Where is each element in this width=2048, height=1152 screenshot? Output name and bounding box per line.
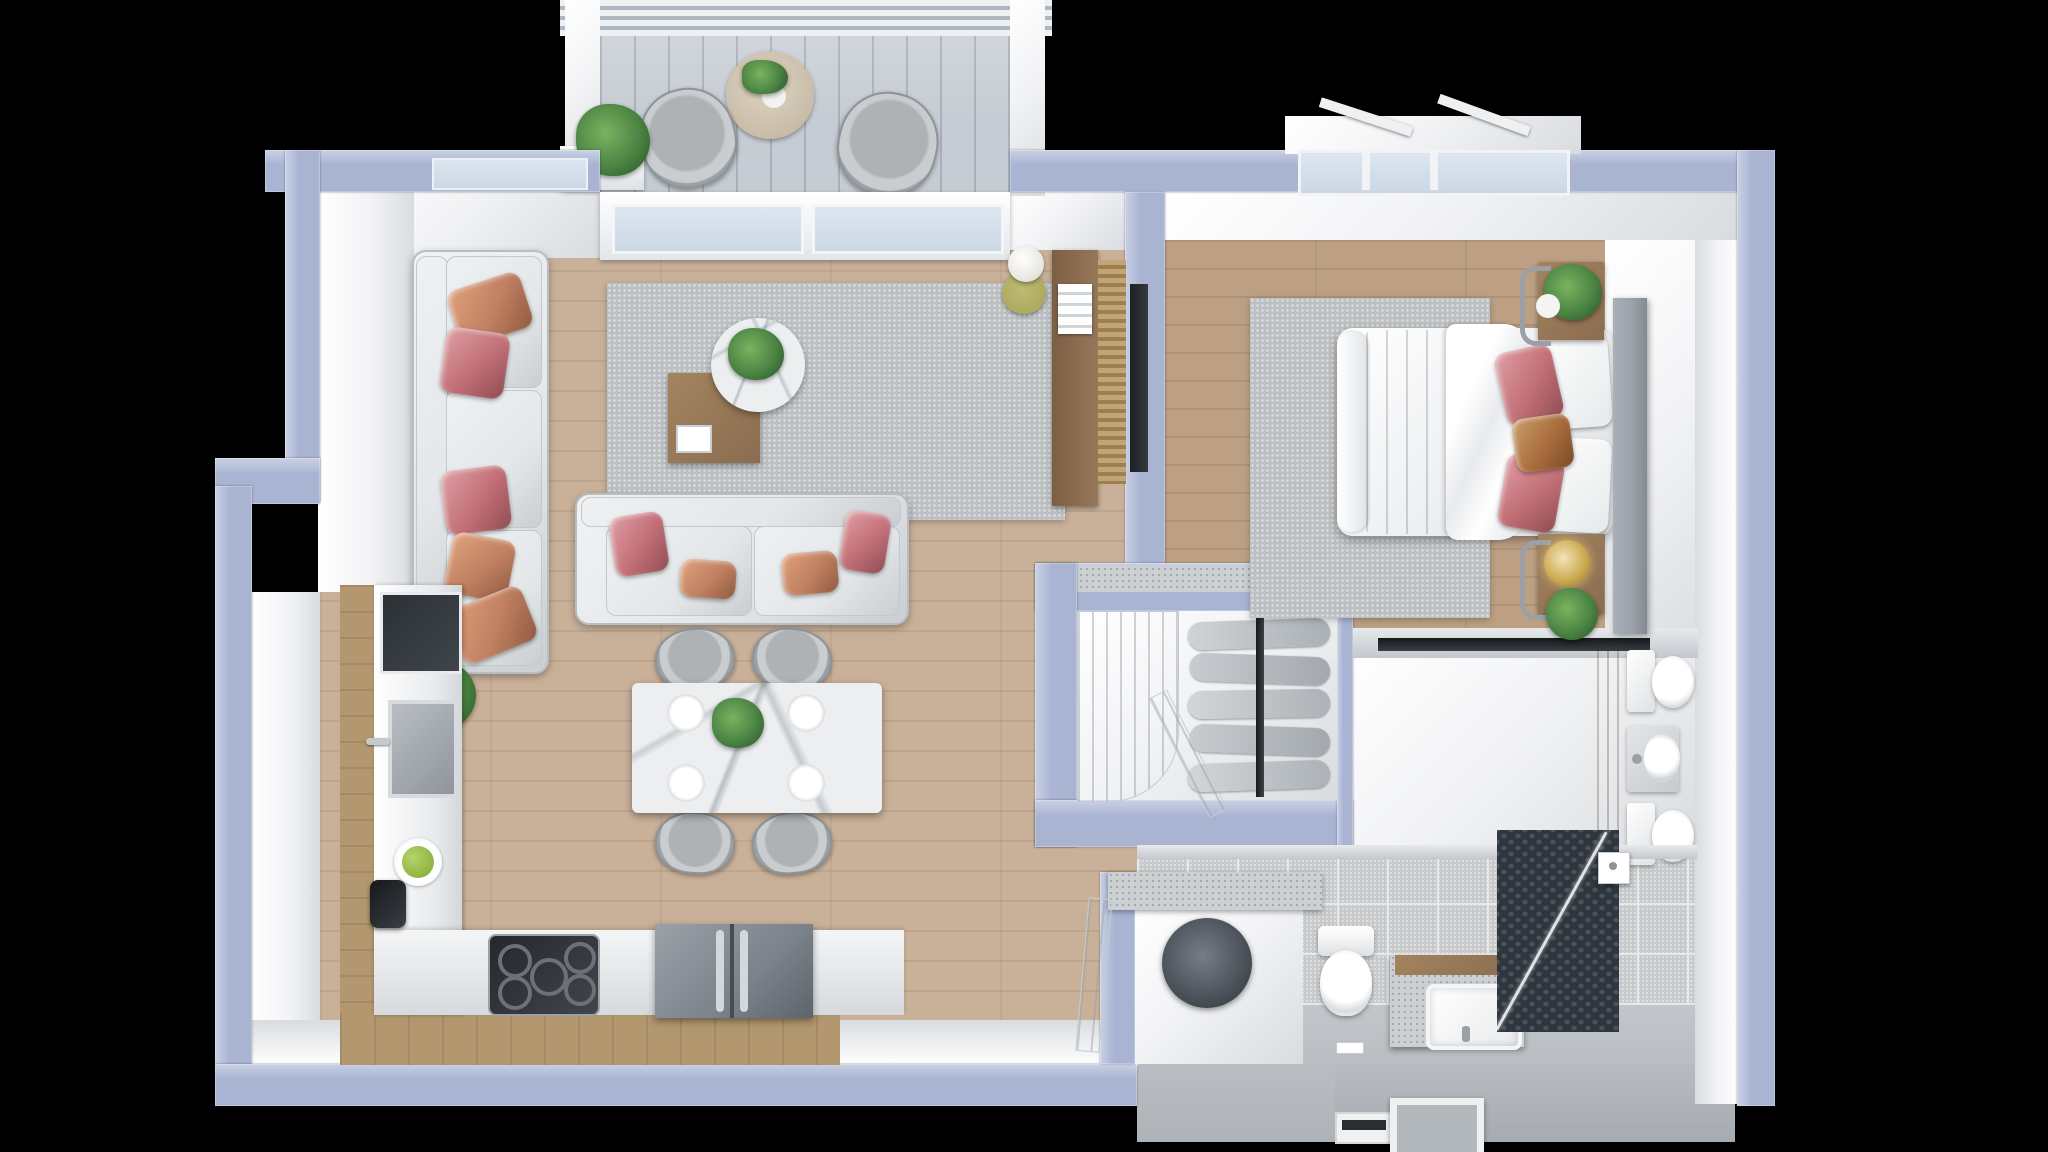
coffee-table-plant: [728, 328, 784, 380]
sofa2-pillow-rose-2: [838, 509, 893, 575]
nightstand-bottom-plant: [1546, 588, 1598, 640]
refrigerator-handle-1: [716, 930, 724, 1012]
wc-toilet-bowl: [1652, 656, 1694, 708]
refrigerator-door-split: [730, 924, 734, 1018]
cooktop-burner-5: [564, 974, 596, 1006]
floor-plan-stage: [0, 0, 2048, 1152]
cooktop-burner-1: [498, 944, 532, 978]
wall-bottom: [215, 1064, 1137, 1106]
kitchen-wood-strip: [340, 585, 374, 1065]
refrigerator-handle-2: [740, 930, 748, 1012]
bathroom-flush-plate: [1336, 1042, 1364, 1054]
sofa2-pillow-copper-1: [679, 558, 738, 600]
balcony-railing: [560, 0, 1052, 36]
sofa2-pillow-copper-2: [780, 550, 839, 597]
cooktop-burner-2: [498, 976, 532, 1010]
laundry-counter: [1108, 872, 1322, 910]
dining-plate-4: [787, 764, 825, 802]
washer-drum: [1162, 918, 1252, 1008]
balcony-table-plant: [742, 60, 788, 94]
bathroom-toilet-bowl: [1320, 950, 1372, 1016]
floor-lamp-sphere: [1008, 246, 1044, 282]
cooktop-burner-4: [564, 942, 596, 974]
dining-centerpiece: [712, 698, 764, 748]
side-table-tablet: [676, 425, 712, 453]
dining-plate-1: [667, 694, 705, 732]
nightstand-top-pot: [1536, 294, 1560, 318]
bedroom-window-mullion-2: [1430, 150, 1438, 190]
closet-wall-bottom: [1035, 800, 1353, 847]
kitchen-sink: [388, 700, 458, 798]
bed-gray-blanket: [1366, 330, 1450, 534]
bedroom-window-mullion-1: [1362, 150, 1370, 190]
sofa-pillow-rose-1: [439, 326, 512, 400]
wall-left-upper: [285, 150, 320, 502]
nightstand-lamp: [1544, 540, 1590, 586]
cooktop-burner-3: [530, 958, 568, 996]
wc-sink-basin: [1644, 734, 1680, 782]
refrigerator: [655, 924, 813, 1018]
bed-foot-roll: [1337, 332, 1367, 532]
balcony-door-glass-right: [812, 204, 1004, 254]
entry-threshold-slot: [1342, 1120, 1386, 1130]
wall-face-top-mid: [1010, 192, 1127, 250]
wall-face-top-bedroom: [1165, 192, 1737, 240]
wall-face-right: [1695, 240, 1739, 1104]
bed-headboard: [1613, 298, 1647, 634]
kitchen-apples: [402, 846, 434, 878]
woven-screen: [1098, 260, 1126, 484]
shower-head-nozzle: [1609, 862, 1617, 870]
window-left-glass: [432, 158, 588, 190]
entry-mat-frame: [1390, 1098, 1484, 1152]
kitchen-oven-unit: [380, 592, 462, 674]
wc-sink-faucet: [1632, 754, 1642, 764]
bedroom-window-sill: [1285, 116, 1581, 154]
wardrobe-rod: [1256, 615, 1264, 797]
kitchen-counter-bottom: [374, 930, 904, 1015]
wall-left-lower: [215, 486, 252, 1106]
kitchen-coffee-machine: [370, 880, 406, 928]
kitchen-wood-base: [340, 1013, 840, 1065]
sofa2-pillow-rose-1: [608, 510, 671, 578]
dining-plate-3: [667, 764, 705, 802]
dining-plate-2: [787, 694, 825, 732]
wall-face-left-lower: [252, 592, 320, 1064]
console-books: [1058, 284, 1092, 334]
wall-face-left-upper: [318, 192, 414, 592]
kitchen-faucet: [366, 738, 390, 745]
wc-wood-panel: [1597, 640, 1627, 858]
tv-panel: [1130, 284, 1148, 472]
vanity-faucet: [1462, 1026, 1470, 1042]
bed-pillow-caramel: [1511, 412, 1576, 474]
sofa-pillow-rose-2: [439, 464, 512, 536]
wc-toilet-tank: [1627, 650, 1655, 712]
balcony-door-glass-left: [612, 204, 804, 254]
wall-right: [1737, 150, 1775, 1106]
